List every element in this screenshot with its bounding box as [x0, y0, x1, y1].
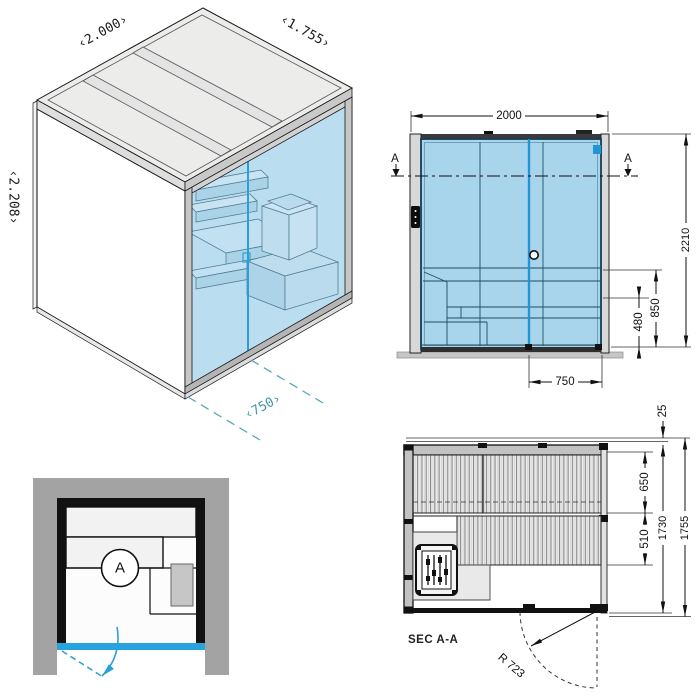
plan-lower-bench	[457, 516, 601, 565]
isometric-view: ‹750› ‹2.000› ‹1.755› ‹2.208›	[6, 8, 353, 440]
section-dimensions: 25 650 510 1730 1755	[607, 401, 691, 617]
plan-front-glass	[408, 608, 607, 613]
section-plan-view: R 723 SEC A-A 25 650 510 1730	[404, 401, 692, 688]
elevation-height-dim: 2210	[680, 228, 692, 252]
iso-door-width-label: ‹750›	[242, 391, 284, 423]
plan-upper-bench	[413, 455, 601, 513]
section-title: SEC A-A	[408, 634, 458, 646]
floorplan-glass-front	[57, 643, 205, 650]
upper-bench-depth-dim: 650	[639, 472, 651, 491]
section-arrow-left-icon	[393, 169, 400, 177]
door-swing-radius-label: R 723	[495, 652, 526, 681]
elevation-control-panel	[411, 206, 420, 228]
outer-depth-dim: 1755	[679, 516, 691, 540]
section-marker-left: A	[391, 153, 399, 165]
elevation-bench-height-dim: 850	[650, 298, 662, 317]
section-marker-right: A	[624, 153, 632, 165]
plan-right-glass	[601, 445, 607, 613]
plan-door-swing: R 723	[495, 611, 597, 688]
elevation-door-handle	[530, 251, 538, 259]
floorplan-heater	[171, 564, 193, 606]
roof-overhang-dim: 25	[657, 405, 669, 418]
elevation-glass-panel	[421, 139, 601, 349]
sauna-technical-drawing: ‹750› ‹2.000› ‹1.755› ‹2.208›	[0, 0, 700, 700]
niche-wall-left	[33, 478, 57, 675]
iso-height-label: ‹2.208›	[6, 170, 21, 225]
elevation-step-height-dim: 480	[633, 312, 645, 331]
elevation-floor	[397, 352, 623, 358]
plan-back-wall	[404, 445, 606, 455]
iso-depth-label: ‹1.755›	[277, 12, 332, 52]
elevation-left-post	[410, 134, 421, 353]
plan-heater	[416, 545, 457, 595]
floorplan-section-marker: A	[115, 560, 125, 577]
niche-wall-right	[205, 478, 229, 675]
niche-wall-top	[33, 478, 229, 499]
iso-width-label: ‹2.000›	[75, 12, 130, 52]
plan-left-wall	[404, 445, 413, 613]
front-elevation-view: A A 2000 2210 850	[391, 110, 692, 388]
elevation-width-dim: 2000	[496, 110, 522, 122]
floor-plan-schematic-view: A	[33, 478, 229, 677]
inner-depth-dim: 1730	[657, 516, 669, 540]
floorplan-bench1	[66, 507, 196, 537]
elevation-door-width-dim: 750	[555, 376, 574, 388]
elevation-door-hinge	[593, 145, 601, 154]
elevation-right-post	[601, 134, 609, 353]
lower-bench-depth-dim: 510	[639, 529, 651, 548]
section-arrow-right-icon	[625, 169, 632, 177]
